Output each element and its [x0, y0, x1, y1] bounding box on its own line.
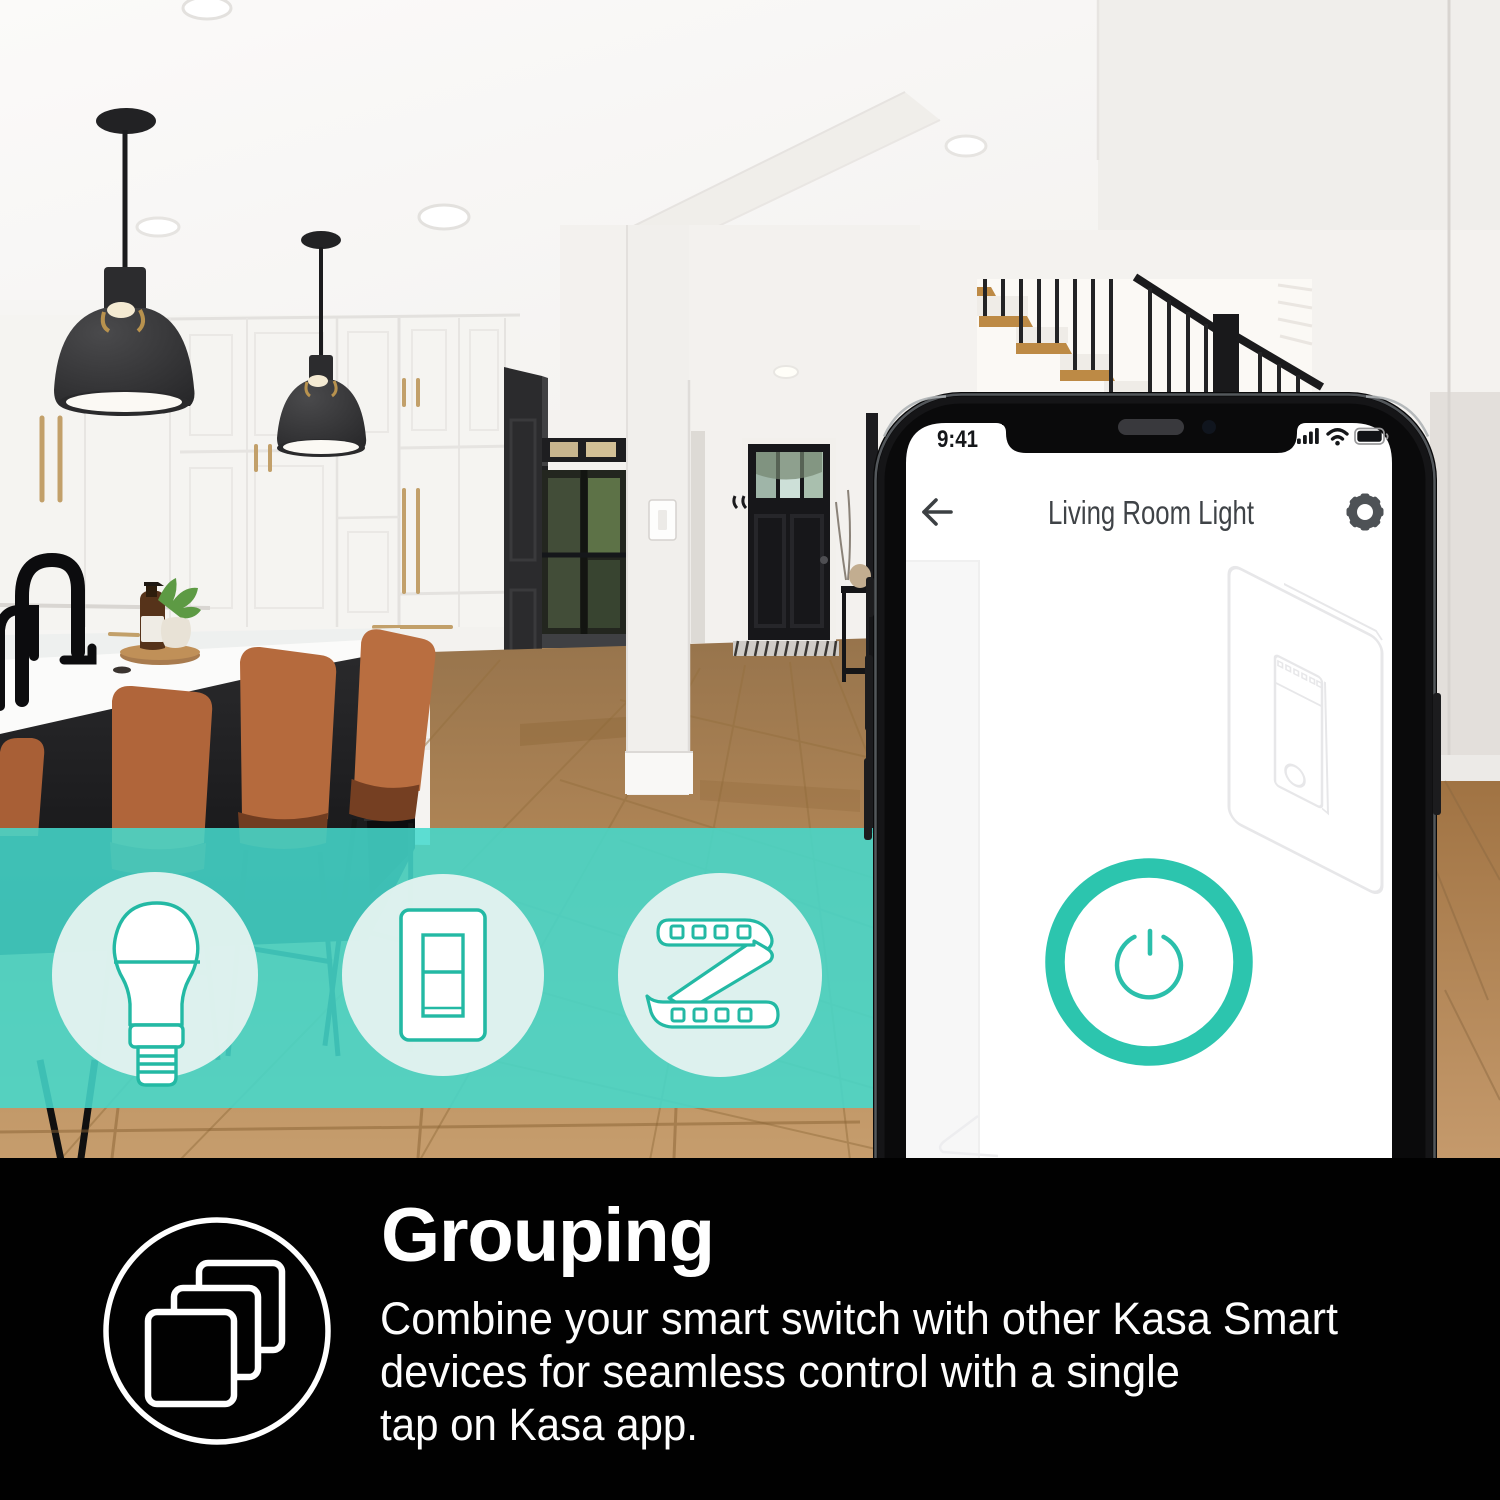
svg-text:tap on Kasa app.: tap on Kasa app. — [380, 1399, 698, 1450]
svg-text:Living Room Light: Living Room Light — [1048, 494, 1254, 531]
svg-text:Grouping: Grouping — [381, 1193, 715, 1278]
svg-text:9:41: 9:41 — [937, 426, 978, 453]
svg-text:devices for seamless control w: devices for seamless control with a sing… — [380, 1346, 1180, 1397]
svg-text:Combine your smart switch with: Combine your smart switch with other Kas… — [380, 1293, 1338, 1344]
